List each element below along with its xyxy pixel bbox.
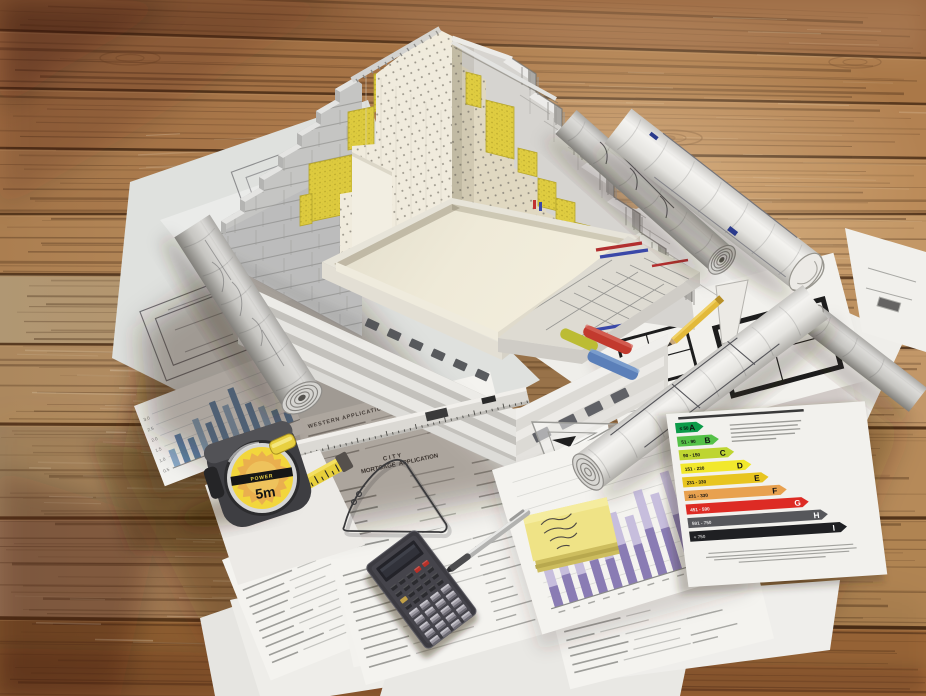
svg-text:A: A: [689, 423, 696, 432]
svg-text:≤ 50: ≤ 50: [679, 426, 689, 432]
svg-text:+ 750: + 750: [693, 534, 706, 540]
svg-text:C: C: [719, 449, 726, 458]
svg-text:H: H: [813, 511, 820, 520]
svg-text:5m: 5m: [254, 483, 276, 502]
svg-text:G: G: [794, 498, 802, 507]
svg-text:D: D: [736, 461, 743, 470]
svg-text:B: B: [704, 436, 711, 445]
svg-text:51 - 90: 51 - 90: [681, 439, 696, 445]
